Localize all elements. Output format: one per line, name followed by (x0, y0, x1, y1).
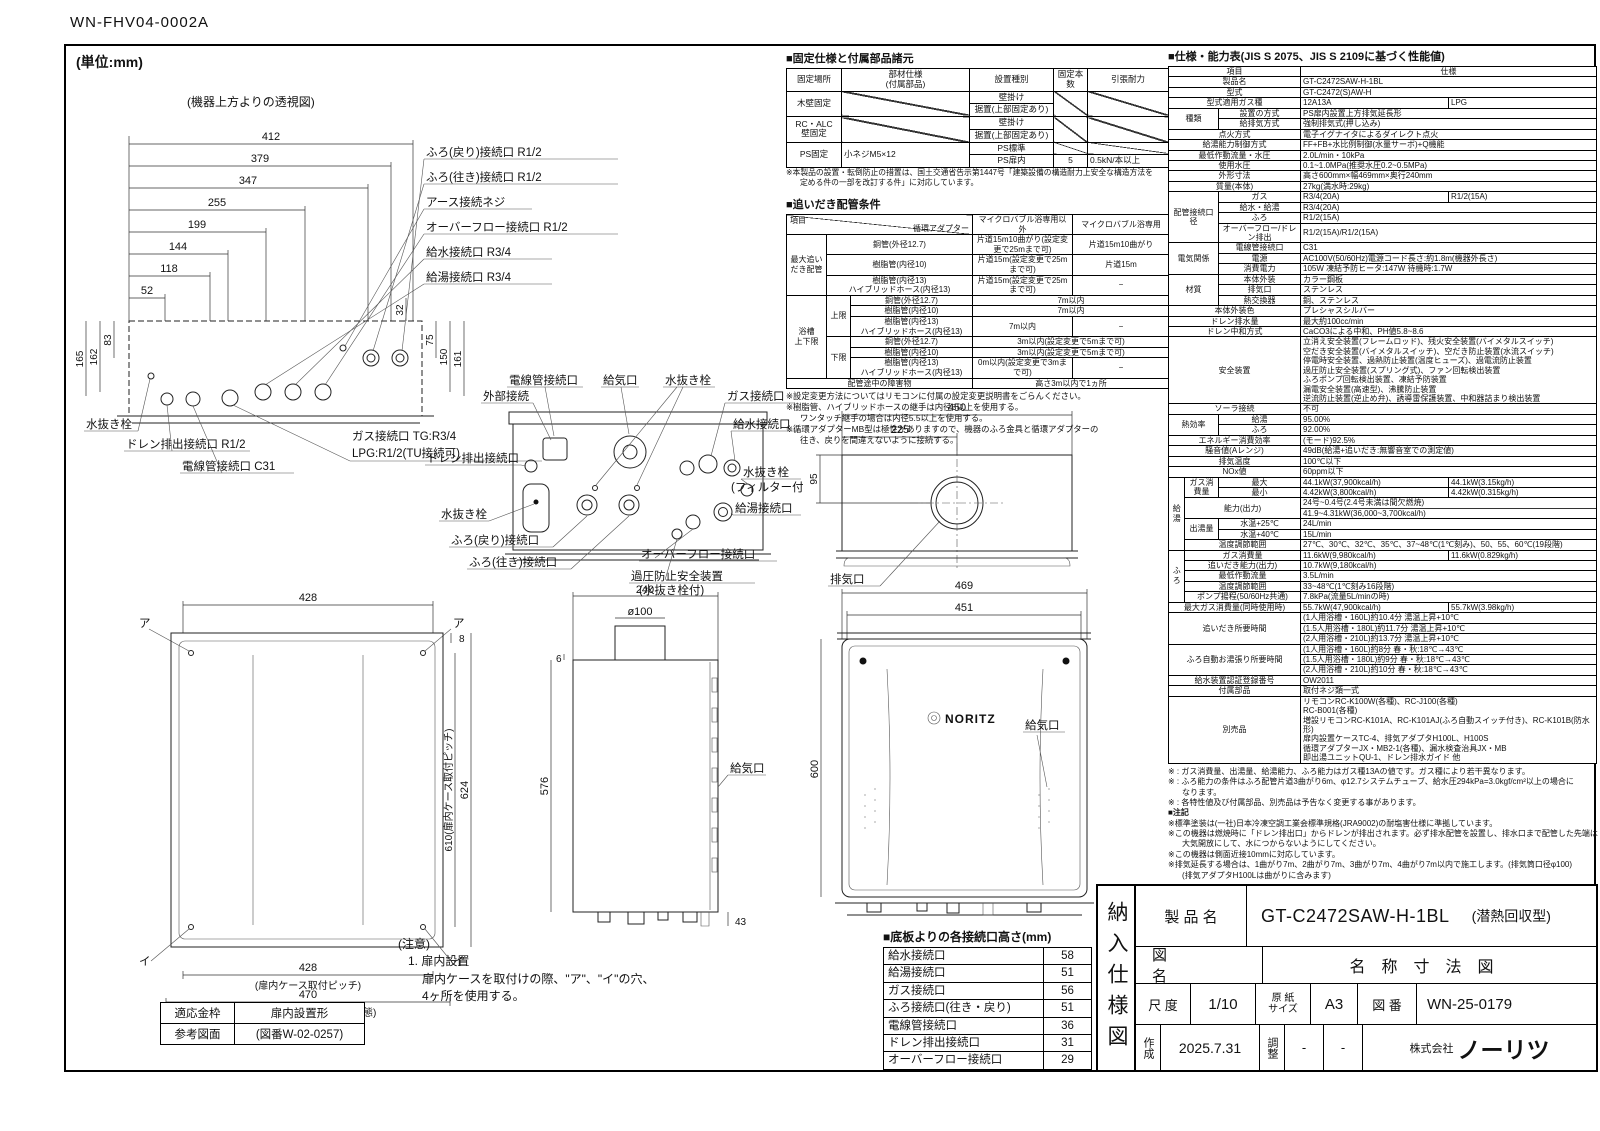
spec-value: 11.6kW(0.829kg/h) (1449, 550, 1597, 560)
paper-size-value: A3 (1311, 984, 1358, 1024)
spec-label: ふろ (1219, 425, 1301, 435)
oidaki-title: ■追いだき配管条件 (786, 196, 1170, 212)
spec-value: GT-C2472(S)AW-H (1301, 87, 1597, 97)
note-line: ※この機器は側面近接10mmに対応しています。 (1168, 850, 1340, 859)
top-view-body (117, 321, 434, 423)
dim-428-top: 428 (299, 592, 317, 604)
front-left-dims-top: 428 ア ア 8 (139, 592, 465, 651)
row-label: 木壁固定 (787, 91, 842, 117)
cell: − (1073, 275, 1170, 295)
spec-value: 10.7kW(9,180kcal/h) (1301, 561, 1597, 571)
spec-value: (1人用浴槽・160L)約10.4分 湯温上昇+10℃ (1301, 613, 1597, 623)
dim-165: 165 (75, 350, 86, 367)
value-line: 41.9~4.31kW(36,000~3,700kcal/h) (1301, 508, 1596, 518)
spec-value: 33~48℃(1℃刻み16段階) (1301, 581, 1597, 591)
spec-label: 給水装置認証登録番号 (1169, 675, 1301, 685)
pipe-label: 樹脂管(内径10) (827, 255, 973, 275)
drawing-name-label: 図名 (1136, 947, 1263, 983)
value-line: 循環アダプターJX・MB2-1(各種)、漏水検査治具JX・MB (1303, 744, 1594, 753)
paper-size-label: 原 紙サイズ (1256, 984, 1311, 1024)
group-label: 浴槽上下限 (787, 295, 827, 378)
spec-value: 4.42kW(3,800kcal/h) (1301, 487, 1449, 497)
note-line: ※ : ふろ能力の条件はふろ配管片道3曲がり6m、φ12.7システムチューブ、給… (1168, 777, 1574, 786)
spec-label: 追いだき所要時間 (1169, 613, 1301, 644)
document-type: 納入仕様図 (1098, 886, 1136, 1070)
dim-347: 347 (239, 175, 257, 187)
label-drain-outlet: ドレン排出接続口 R1/2 (126, 437, 246, 451)
spec-value: プレシャスシルバー (1301, 306, 1597, 316)
oidaki-table: 項目循環アダプター マイクロバブル浴専用以外 マイクロバブル浴専用 最大追いだき… (786, 214, 1170, 389)
spec-value: 取付ネジ類一式 (1301, 686, 1597, 696)
spec-label: 電源 (1219, 253, 1301, 263)
scale-value: 1/10 (1191, 984, 1256, 1024)
top-view-side-dims: 165 162 83 75 150 161 (75, 321, 464, 396)
spec-value: 不可 (1301, 404, 1597, 414)
spec-value: 27kg(満水時:29kg) (1301, 181, 1597, 191)
spec-value: (1人用浴槽・160L)約8分 春・秋:18℃→43℃ (1301, 644, 1597, 654)
col-header: 仕様 (1301, 67, 1597, 77)
cell: − (1073, 316, 1170, 336)
dim-150: 150 (439, 348, 450, 365)
note-line: ※ : ガス消費量、出湯量、給湯能力、ふろ能力はガス種13Aの値です。ガス種によ… (1168, 767, 1530, 776)
drawing-number-label: 図 番 (1358, 984, 1417, 1024)
spec-value: 60ppm以下 (1301, 467, 1597, 477)
dim-8: 8 (459, 634, 465, 645)
side-view-drawing: 240 ø100 6 576 給気口 43 (538, 582, 773, 932)
row-label-line: 壁固定 (789, 129, 839, 139)
note-line: 定める件の一部を改訂する件」に対応しています。 (786, 178, 978, 187)
top-rear-body (836, 443, 1078, 568)
product-note: (潜熱回収型) (1472, 906, 1551, 926)
diagonal-header: 項目循環アダプター (787, 215, 973, 235)
fixed-spec-section: ■固定仕様と付属部品諸元 固定場所 部材仕様(付属部品) 設置種別 固定本数 引… (786, 50, 1170, 188)
spec-value: (モード)92.5% (1301, 435, 1597, 445)
row-label: 給湯接続口 (884, 965, 1044, 982)
cell: 5 (1054, 155, 1088, 168)
paper-label-line: サイズ (1268, 1004, 1298, 1015)
spec-value: 最大約100cc/min (1301, 316, 1597, 326)
group-label-line: だき配管 (789, 265, 824, 275)
spec-value: 92.00% (1301, 425, 1597, 435)
created-label: 作成 (1136, 1025, 1161, 1070)
note-line: なります。 (1168, 788, 1221, 797)
value-line: リモコンRC-K100W(各種)、RC-J100(各種) (1303, 697, 1594, 706)
note-line: ※ : 各特性値及び付属部品、別売品は予告なく変更する事があります。 (1168, 798, 1421, 807)
diagonal-cell (842, 117, 970, 143)
spec-label: 最低作動流量 (1185, 571, 1301, 581)
adjust-value-1: - (1285, 1025, 1324, 1070)
spec-label: 最大ガス消費量(同時使用時) (1169, 602, 1301, 612)
row-label: オーバーフロー接続口 (884, 1052, 1044, 1069)
row-label: RC・ALC壁固定 (787, 117, 842, 143)
spec-label: 水温+40℃ (1219, 529, 1301, 539)
spec-label: 能力(出力) (1185, 498, 1301, 519)
diagonal-cell (1054, 117, 1088, 143)
label-conduit: 電線管接続口 (509, 373, 578, 387)
cell: PS扉内 (970, 155, 1054, 168)
spec-label: 質量(本体) (1169, 181, 1301, 191)
label-external: 外部接続 (483, 389, 529, 403)
spec-value: リモコンRC-K100W(各種)、RC-J100(各種)RC-B001(各種)増… (1301, 696, 1597, 763)
frame-reference-table: 適応金枠扉内設置形 参考図面(図番W-02-0257) (160, 1002, 365, 1045)
front-right-dims: 469 451 600 (809, 580, 1087, 897)
company-cell: 株式会社 ノーリツ (1363, 1025, 1596, 1070)
group-label-line: 浴槽 (789, 327, 824, 337)
spec-value: (1.5人用浴槽・180L)約9分 春・秋:18℃→43℃ (1301, 654, 1597, 664)
row-label: 参考図面 (161, 1024, 235, 1045)
dim-428-bottom: 428 (299, 962, 317, 974)
spec-subgroup: ガス消費量 (1185, 477, 1219, 498)
spec-label: 排気口 (1219, 285, 1301, 295)
pipe-label: 樹脂管(内径13)ハイブリッドホース(内径13) (851, 358, 973, 378)
dim-161: 161 (453, 350, 464, 367)
scale-row: 尺 度 1/10 原 紙サイズ A3 図 番 WN-25-0179 (1136, 984, 1596, 1025)
spec-value: 3.5L/min (1301, 571, 1597, 581)
title-block: 納入仕様図 製 品 名 GT-C2472SAW-H-1BL (潜熱回収型) 図名… (1096, 884, 1598, 1072)
header-item: 項目 (790, 216, 806, 226)
spec-group: 材質 (1169, 274, 1219, 305)
spec-drawing-sheet: WN-FHV04-0002A (単位:mm) (機器上方よりの透視図) 412 … (0, 0, 1600, 1131)
note-line: (排気アダプタH100Lは曲がりに含みます) (1168, 871, 1331, 880)
note-line: ※この機器は燃焼時に「ドレン排出口」からドレンが排出されます。必ず排水配管を設置… (1168, 829, 1598, 838)
paper-label-line: 原 紙 (1272, 993, 1295, 1004)
diagonal-cell (1054, 91, 1088, 117)
spec-label: ふろ (1219, 213, 1301, 223)
row-label: ガス接続口 (884, 982, 1044, 999)
dim-162: 162 (89, 348, 100, 365)
spec-value: R1/2(15A) (1301, 213, 1597, 223)
label-relief-valve: 過圧防止安全装置 (631, 569, 723, 583)
front-left-dims-right: 610(扉内ケース取付ピッチ) 624 (442, 633, 471, 947)
side-view-body (573, 626, 718, 926)
spec-value: PS扉内設置上方排気延長形 (1301, 108, 1597, 118)
value-line: 停電時安全装置、過熱防止装置(温度ヒューズ)、過電流防止装置 (1303, 356, 1594, 365)
spec-label: ガス消費量 (1185, 550, 1301, 560)
spec-label: 本体外装色 (1169, 306, 1301, 316)
note-line: ※標準塗装は(一社)日本冷凍空調工業会標準規格(JRA9002)の耐塩害仕様に準… (1168, 819, 1497, 828)
cell: 片道15m10曲がり (1073, 235, 1170, 255)
col-header-line: (付属部品) (844, 80, 967, 90)
spec-value: 7.8kPa(流量5L/minの時) (1301, 592, 1597, 602)
spec-label: 排気温度 (1169, 456, 1301, 466)
heights-table: 給水接続口58 給湯接続口51 ガス接続口56 ふろ接続口(往き・戻り)51 電… (883, 947, 1092, 1070)
label-drain-plug-left: 水抜き栓 (441, 507, 487, 521)
dim-379: 379 (251, 153, 269, 165)
pipe-label-line: 樹脂管(内径13) (853, 317, 970, 327)
spec-value: R3/4(20A) (1301, 202, 1597, 212)
cell: 0m以内(設定変更で3mまで可) (973, 358, 1073, 378)
top-view-caption: (機器上方よりの透視図) (187, 94, 315, 109)
scale-label: 尺 度 (1136, 984, 1191, 1024)
note-line: 往き、戻りを間違えないように接続する。 (786, 435, 958, 445)
spec-value: AC100V(50/60Hz)電源コード長さ:約1.8m(機器外長さ) (1301, 253, 1597, 263)
spec-value: 高さ600mm×幅469mm×奥行240mm (1301, 171, 1597, 181)
drawing-name-row: 図名 名称寸法図 (1136, 947, 1596, 984)
row-value: 56 (1044, 982, 1092, 999)
spec-value: 銅、ステンレス (1301, 295, 1597, 305)
spec-value: (2人用浴槽・210L)約10分 春・秋:18℃→43℃ (1301, 665, 1597, 675)
col-header: 固定場所 (787, 69, 842, 92)
caution-title: (注意) (398, 936, 654, 953)
value-line: 24号~0.4号(2.4号未満は間欠燃焼) (1301, 498, 1596, 507)
pipe-label-line: ハイブリッドホース(内径13) (853, 327, 970, 337)
note-line: ※循環アダプターMB型は極性がありますので、機器のふろ金具と循環アダプターの (786, 424, 1098, 434)
spec-value: 強制排気式(押し込み) (1301, 119, 1597, 129)
spec-value: 44.1kW(3.15kg/h) (1449, 477, 1597, 487)
spec-section: ■仕様・能力表(JIS S 2075、JIS S 2109に基づく性能値) 項目… (1168, 48, 1598, 881)
row-label: 給水接続口 (884, 948, 1044, 965)
product-label: 製 品 名 (1136, 886, 1247, 946)
cell: 片道15m (1073, 255, 1170, 275)
dim-118: 118 (160, 263, 178, 275)
spec-value: FF+FB+水比例制御(水量サーボ)+Q機能 (1301, 140, 1597, 150)
spec-value: (1.5人用浴槽・180L)約11.7分 湯温上昇+10℃ (1301, 623, 1597, 633)
col-header: マイクロバブル浴専用以外 (973, 215, 1073, 235)
fixed-table-note: ※本製品の設置・転倒防止の措置は、国土交通省告示第1447号「建築設備の構造耐力… (786, 168, 1170, 188)
value-line: ふろポンプ回転検出装置、凍結予防装置 (1303, 375, 1594, 384)
spec-label: 騒音値(Aレンジ) (1169, 446, 1301, 456)
dim-624: 624 (459, 781, 471, 799)
pipe-label: 樹脂管(内径13)ハイブリッドホース(内径13) (827, 275, 973, 295)
dim-144: 144 (169, 241, 187, 253)
cell: 7m以内 (973, 306, 1170, 317)
spec-value: 4.42kW(0.315kg/h) (1449, 487, 1597, 497)
spec-label: 熱交換器 (1219, 295, 1301, 305)
spec-value: R3/4(20A) (1301, 192, 1449, 202)
product-row: 製 品 名 GT-C2472SAW-H-1BL (潜熱回収型) (1136, 886, 1596, 947)
marker-i-left: イ (139, 956, 151, 968)
cell: 0.5kN/本以上 (1088, 155, 1169, 168)
spec-value: OW2011 (1301, 675, 1597, 685)
spec-label: 付属部品 (1169, 686, 1301, 696)
spec-label: 電線管接続口 (1219, 243, 1301, 253)
caution-line: 4ヶ所を使用する。 (398, 988, 654, 1005)
product-value-cell: GT-C2472SAW-H-1BL (潜熱回収型) (1247, 886, 1596, 946)
pipe-label-line: 樹脂管(内径13) (853, 358, 970, 368)
caution-line: 扉内ケースを取付けの際、"ア"、"イ"の穴、 (398, 971, 654, 988)
cell: 壁掛け (970, 91, 1054, 104)
spec-label: 給湯 (1219, 414, 1301, 424)
front-right-drawing: 469 451 600 NORITZ 給気口 (787, 577, 1107, 922)
spec-label: 給湯能力制御方式 (1169, 140, 1301, 150)
row-label: 適応金枠 (161, 1003, 235, 1024)
col-header: 設置種別 (970, 69, 1054, 92)
spec-label: 最大 (1219, 477, 1301, 487)
unit-label: (単位:mm) (76, 52, 143, 72)
group-label-line: 最大追い (789, 255, 824, 265)
label-drain-plug-top: 水抜き栓 (665, 373, 711, 387)
spec-label: ふろ自動お湯張り所要時間 (1169, 644, 1301, 675)
note-line: ワンタッチ継手の場合は内径5.5以上を使用する。 (786, 413, 988, 423)
spec-label: NOx値 (1169, 467, 1301, 477)
noritz-logo: NORITZ (928, 712, 996, 726)
marker-a-right: ア (453, 618, 465, 630)
adjust-value-2: - (1324, 1025, 1363, 1070)
side-view-dims: 240 ø100 6 576 (539, 584, 718, 912)
dim-240: 240 (636, 584, 654, 596)
spec-value: 立消え安全装置(フレームロッド)、残火安全装置(バイメタルスイッチ)空だき安全装… (1301, 337, 1597, 404)
pipe-label: 樹脂管(内径10) (851, 347, 973, 358)
spec-value: 105W 凍結予防ヒータ:147W 待機時:1.7W (1301, 264, 1597, 274)
spec-value: CaCO3による中和、PH値5.8~8.6 (1301, 326, 1597, 336)
group-label: 最大追いだき配管 (787, 235, 827, 296)
label-overflow: オーバーフロー接続口 R1/2 (426, 220, 568, 234)
spec-label: 型式 (1169, 87, 1301, 97)
spec-subgroup: 出湯量 (1185, 519, 1219, 540)
spec-table: 項目仕様 製品名GT-C2472SAW-H-1BL 型式GT-C2472(S)A… (1168, 66, 1597, 764)
pipe-label-line: 樹脂管(内径13) (829, 276, 970, 286)
col-header: 項目 (1169, 67, 1301, 77)
sub-group-label: 下限 (827, 337, 851, 378)
spec-label: ポンプ揚程(50/60Hz共通) (1185, 592, 1301, 602)
dim-6: 6 (556, 654, 562, 665)
spec-value: 27℃、30℃、32℃、35℃、37~48℃(1℃刻み)、50、55、60℃(1… (1301, 540, 1597, 550)
spec-notes: ※ : ガス消費量、出湯量、給湯能力、ふろ能力はガス種13Aの値です。ガス種によ… (1168, 767, 1598, 881)
dim-610: 610(扉内ケース取付ピッチ) (442, 729, 455, 852)
dim-470: 470 (299, 989, 317, 1001)
label-air-intake: 給気口 (1025, 718, 1060, 732)
dim-255: 255 (208, 197, 226, 209)
label-drain-outlet: ドレン排出接続口 (427, 451, 519, 465)
notes-title: ■注記 (1168, 808, 1189, 817)
diagonal-cell (1054, 142, 1088, 155)
label-furo-return: ふろ(戻り)接続口 R1/2 (426, 145, 542, 159)
spec-value: 2.0L/min・10kPa (1301, 150, 1597, 160)
value-line: 逆流防止装置(逆止め弁)、誘導雷保護装置、中和器詰まり検出装置 (1303, 394, 1594, 403)
cell: 7m以内 (973, 295, 1170, 306)
cell: 壁掛け (970, 117, 1054, 130)
rear-view-labels: 電線管接続口 給気口 水抜き栓 外部接続 ガス接続口 給水接続口 水抜き栓 (フ… (425, 373, 803, 597)
cell: 高さ3m以内で1ヵ所 (973, 378, 1170, 389)
label-conduit: 電線管接続口 C31 (182, 459, 275, 473)
label-drain-plug: 水抜き栓 (86, 417, 132, 431)
label-gas: ガス接続口 (727, 389, 785, 403)
spec-label: 給排気方式 (1219, 119, 1301, 129)
spec-label: 最低作動流量・水圧 (1169, 150, 1301, 160)
dim-451: 451 (955, 602, 973, 614)
col-header: 固定本数 (1054, 69, 1088, 92)
label-hot-water: 給湯接続口 R3/4 (426, 270, 512, 284)
note-line: 大気開放にして、水につからないようにしてください。 (1168, 839, 1381, 848)
document-number: WN-FHV04-0002A (70, 14, 209, 31)
label-drain-plug-filter: 水抜き栓 (743, 465, 789, 479)
value-line: RC-B001(各種) (1303, 706, 1594, 715)
row-label: 電線管接続口 (884, 1017, 1044, 1034)
cell: PS標準 (970, 142, 1054, 155)
row-label: 配管途中の障害物 (787, 378, 973, 389)
pipe-label: 銅管(外径12.7) (827, 235, 973, 255)
dim-75: 75 (425, 334, 436, 346)
adjust-label: 調整 (1260, 1025, 1285, 1070)
header-adapter: 循環アダプター (913, 224, 969, 234)
row-value: 36 (1044, 1017, 1092, 1034)
fixed-table: 固定場所 部材仕様(付属部品) 設置種別 固定本数 引張耐力 木壁固定 壁掛け … (786, 68, 1169, 168)
spec-value: R1/2(15A) (1449, 192, 1597, 202)
pipe-label-line: ハイブリッドホース(内径13) (829, 285, 970, 295)
spec-value: 49dB(給湯+追いだき:無響音室での測定値) (1301, 446, 1597, 456)
spec-value: R1/2(15A)/R1/2(15A) (1301, 223, 1597, 243)
spec-group: 種類 (1169, 108, 1219, 129)
cell: − (1073, 358, 1170, 378)
company-logo: ノーリツ (1458, 1031, 1550, 1065)
spec-value: 12A13A (1301, 98, 1449, 108)
spec-value: 95.00% (1301, 414, 1597, 424)
spec-group: 熱効率 (1169, 414, 1219, 435)
spec-label: ドレン中和方式 (1169, 326, 1301, 336)
spec-label: エネルギー消費効率 (1169, 435, 1301, 445)
spec-value: カラー鋼板 (1301, 274, 1597, 284)
spec-value: 55.7kW(47,900kcal/h) (1301, 602, 1449, 612)
spec-label: 温度調節範囲 (1185, 540, 1301, 550)
dim-412: 412 (262, 131, 280, 143)
spec-label: 別売品 (1169, 696, 1301, 763)
dim-52: 52 (141, 285, 153, 297)
cell: 片道15m10曲がり(設定変更で25mまで可) (973, 235, 1073, 255)
created-row: 作成 2025.7.31 調整 - - 株式会社 ノーリツ (1136, 1025, 1596, 1070)
rear-view-drawing: 電線管接続口 給気口 水抜き栓 外部接続 ガス接続口 給水接続口 水抜き栓 (フ… (425, 372, 803, 600)
spec-value: 55.7kW(3.98kg/h) (1449, 602, 1597, 612)
spec-value: 11.6kW(9,980kcal/h) (1301, 550, 1449, 560)
value-line: 扉内設置ケースTC-4、排気アダプタH100L、H100S (1303, 734, 1594, 743)
pipe-label: 銅管(外径12.7) (851, 337, 973, 348)
label-earth-screw: アース接続ネジ (426, 195, 505, 209)
product-value: GT-C2472SAW-H-1BL (1261, 906, 1450, 927)
cell: 3m以内(設定変更で5mまで可) (973, 347, 1170, 358)
cell: 片道15m(設定変更で25mまで可) (973, 275, 1073, 295)
dim-576: 576 (539, 777, 551, 795)
row-value: 58 (1044, 948, 1092, 965)
drawing-number-value: WN-25-0179 (1417, 984, 1596, 1024)
diagonal-cell (1088, 117, 1169, 143)
value-line: 立消え安全装置(フレームロッド)、残火安全装置(バイメタルスイッチ) (1303, 337, 1594, 346)
label-overflow: オーバーフロー接続口 (641, 547, 755, 561)
diagonal-cell (842, 91, 970, 117)
dim-600: 600 (809, 760, 821, 778)
spec-label: 消費電力 (1219, 264, 1301, 274)
spec-value: 24号~0.4号(2.4号未満は間欠燃焼)41.9~4.31kW(36,000~… (1301, 498, 1597, 519)
spec-value: 0.1~1.0MPa(推奨水圧0.2~0.5MPa) (1301, 160, 1597, 170)
spec-label: 設置の方式 (1219, 108, 1301, 118)
pipe-label: 樹脂管(内径10) (851, 306, 973, 317)
front-right-body (835, 633, 1094, 915)
label-drain-plug-filter-2: (フィルター付) (731, 481, 803, 494)
spec-value: 24L/min (1301, 519, 1597, 529)
row-value: 51 (1044, 965, 1092, 982)
sub-group-label: 上限 (827, 295, 851, 336)
spec-label: 最小 (1219, 487, 1301, 497)
spec-label: 型式適用ガス種 (1169, 98, 1301, 108)
value-line: 空だき安全装置(バイメタルスイッチ)、空だき防止装置(水流スイッチ) (1303, 347, 1594, 356)
col-header: 部材仕様(付属部品) (842, 69, 970, 92)
spec-group: 給湯 (1169, 477, 1185, 550)
marker-a-left: ア (139, 618, 151, 630)
row-label: ドレン排出接続口 (884, 1034, 1044, 1051)
spec-label: 製品名 (1169, 77, 1301, 87)
label-furo-return: ふろ(戻り)接続口 (451, 533, 539, 547)
spec-label: 外形寸法 (1169, 171, 1301, 181)
spec-label: ガス (1219, 192, 1301, 202)
spec-label: 安全装置 (1169, 337, 1301, 404)
dim-199: 199 (188, 219, 206, 231)
note-line: ※排気延長する場合は、1曲がり7m、2曲がり7m、3曲がり7m、4曲がり7m以内… (1168, 860, 1572, 869)
fixed-table-title: ■固定仕様と付属部品諸元 (786, 50, 1170, 66)
row-value: 29 (1044, 1052, 1092, 1069)
spec-group: 配管接続口径 (1169, 192, 1219, 243)
dim-95: 95 (809, 473, 820, 485)
col-header: マイクロバブル浴専用 (1073, 215, 1170, 235)
row-value: 扉内設置形 (235, 1003, 365, 1024)
col-header: 引張耐力 (1088, 69, 1169, 92)
